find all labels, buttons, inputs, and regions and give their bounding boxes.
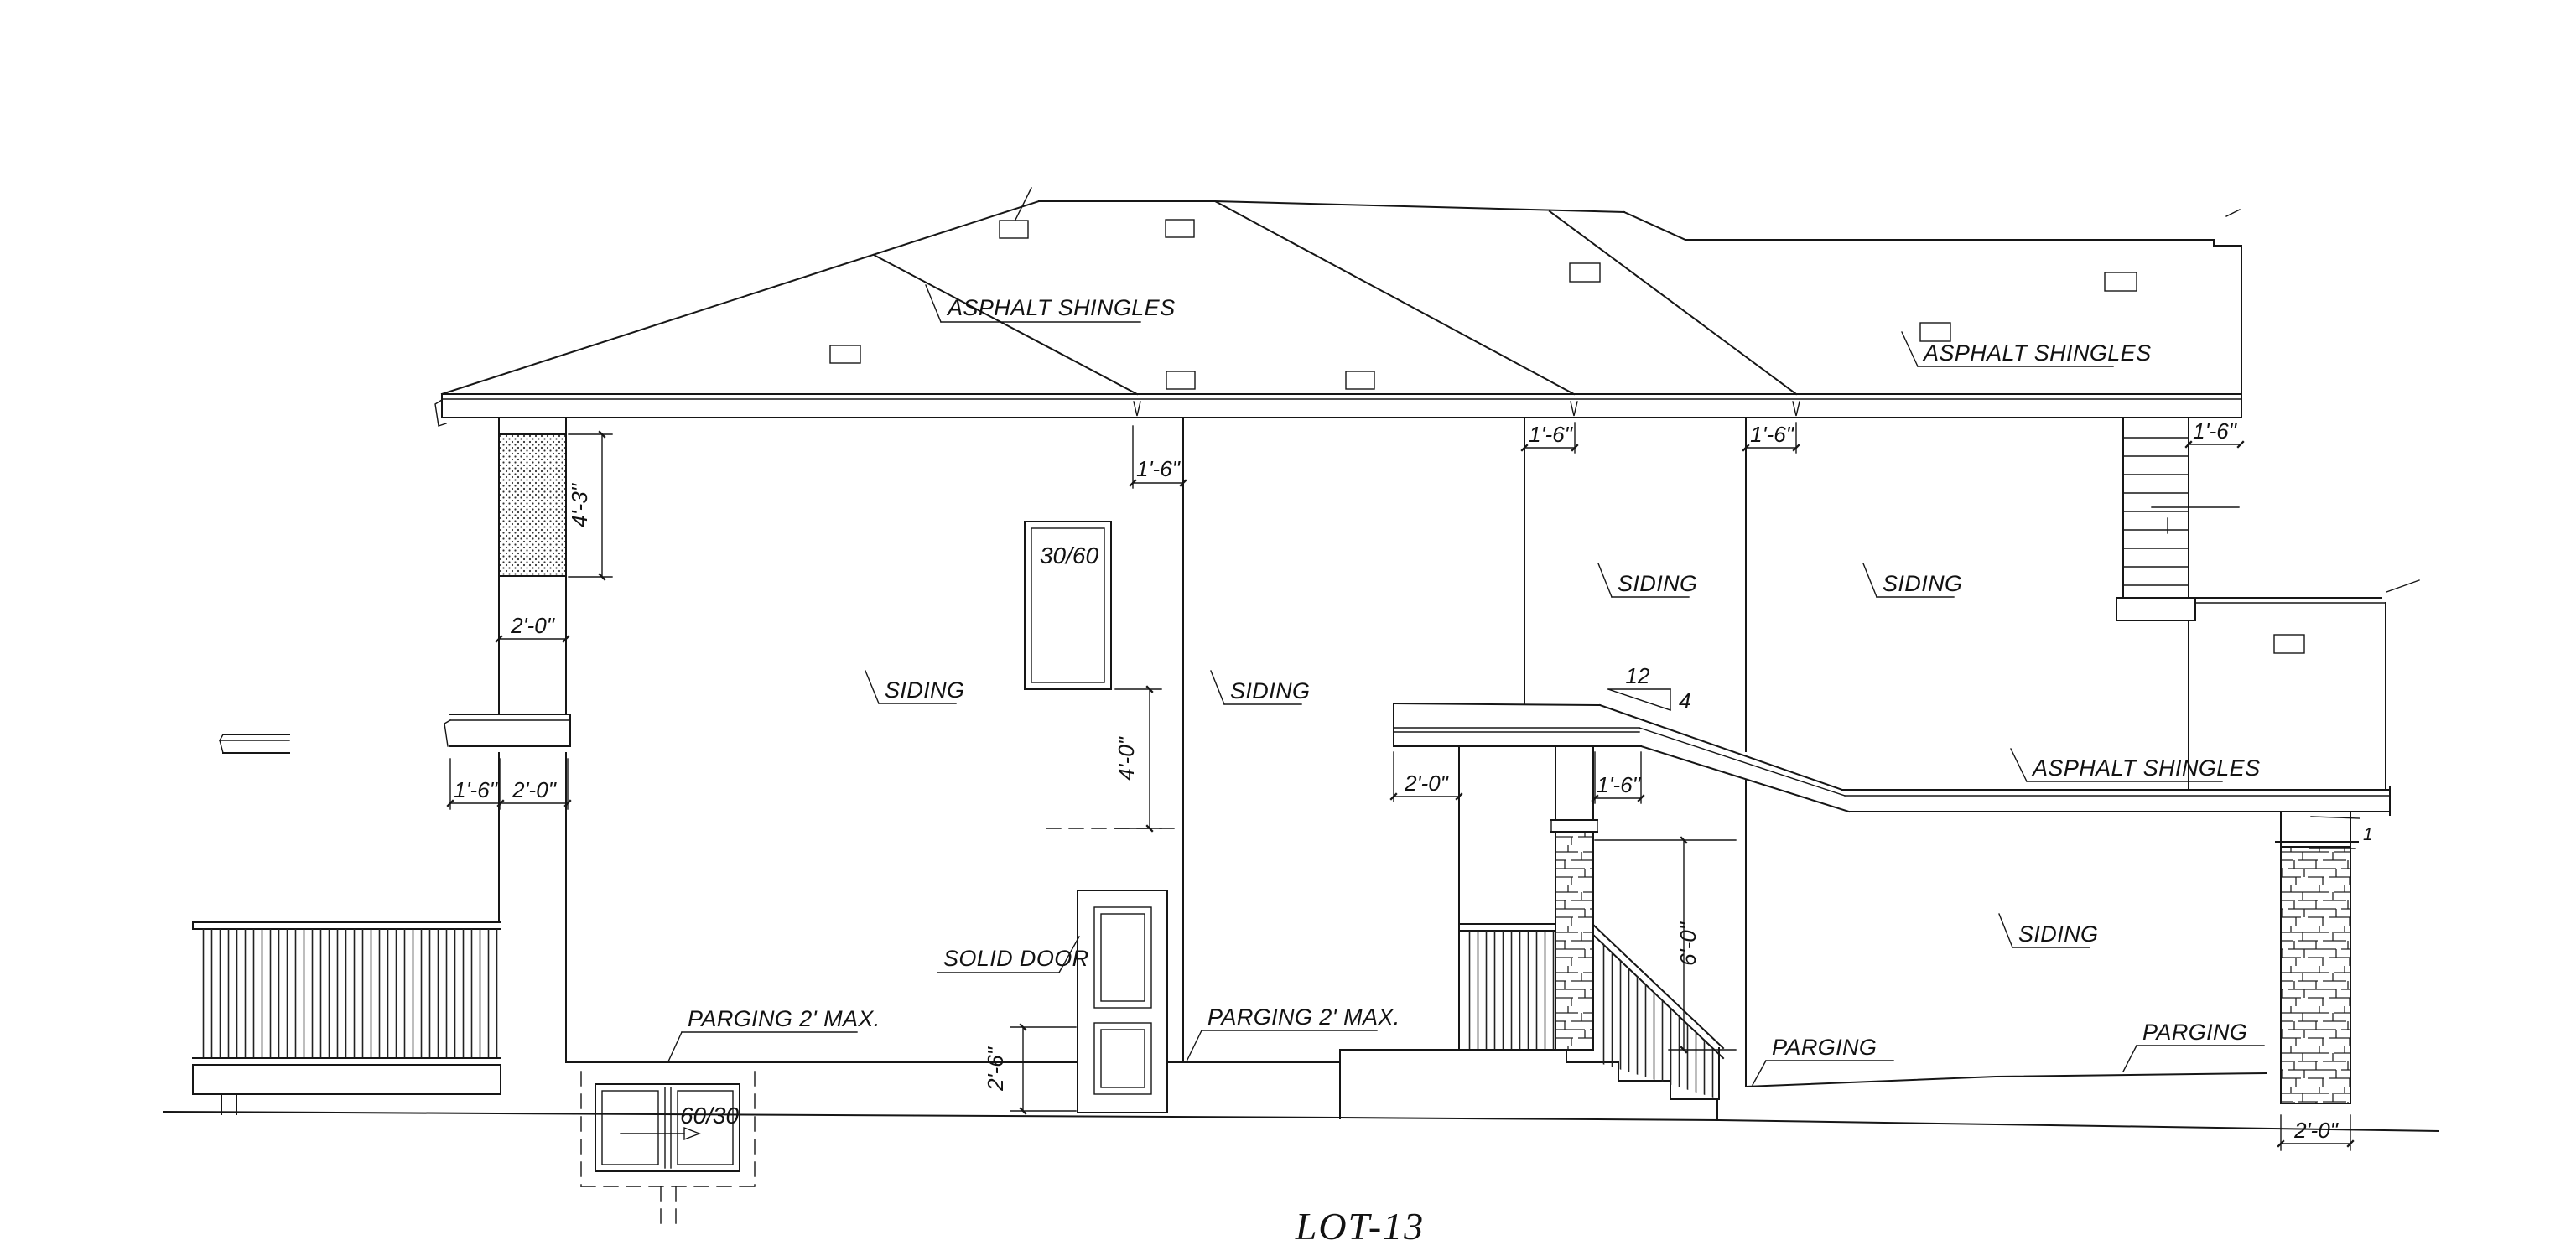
pillar-cap-note: 1 [2363,825,2373,844]
right-bay [2195,580,2419,603]
dim-window-sill: 4'-0" [1114,735,1139,781]
label-parging-max-1: PARGING 2' MAX. [688,1006,880,1031]
slope-rise: 12 [1626,663,1650,688]
label-siding-3: SIDING [1618,571,1697,596]
porch-column [1551,746,1597,1050]
roof-vent [1166,371,1195,389]
dim-chimney: 1'-6" [2193,418,2238,444]
stair-balusters [1597,937,1719,1099]
chimney-base-band [2116,598,2195,620]
roof-outline [435,188,2241,426]
dim-canopy-right: 2'-0" [512,777,558,802]
upper-window: 30/60 [1025,522,1111,689]
roof-vent [2274,635,2304,653]
side-canopy [444,714,570,746]
roof-vent [1920,323,1950,341]
label-parging-2: PARGING [2142,1020,2247,1045]
roof-vent [830,345,860,363]
dimensions: 2'-0" 4'-3" 1'-6" 2'-0" 1'-6" 4'-0" 2'-6… [450,418,2350,1150]
stair-railing [1593,925,1723,1099]
porch-railing [1461,924,1555,1050]
label-parging-1: PARGING [1772,1035,1877,1060]
stone-pillar: 1 [2276,812,2373,1103]
deck-balusters [196,929,498,1058]
label-siding-5: SIDING [2018,921,2098,947]
label-asphalt-shingles-3: ASPHALT SHINGLES [2031,755,2260,781]
label-siding-1: SIDING [885,677,964,703]
foundation-lines [164,1062,2438,1131]
dim-canopy-left: 1'-6" [454,777,499,802]
dim-gable-vent-height: 4'-3" [567,482,592,527]
dim-porch-left: 2'-0" [1404,771,1450,796]
deck-fascia [193,1065,501,1094]
label-parging-max-2: PARGING 2' MAX. [1207,1004,1400,1030]
dim-eave-b: 1'-6" [1750,422,1795,447]
label-siding-4: SIDING [1883,571,1962,596]
deck-railing [193,922,501,1114]
porch-balusters [1462,931,1555,1050]
elevation-drawing: 30/60 60/30 [0,0,2576,1256]
roof-vent [1000,221,1028,238]
elevation-sheet: 30/60 60/30 [0,0,2576,1256]
label-asphalt-shingles-1: ASPHALT SHINGLES [946,295,1175,320]
dim-pillar: 2'-0" [2293,1118,2340,1143]
chimney [2116,419,2239,620]
hip-line-a [1215,201,1574,394]
label-siding-2: SIDING [1230,678,1310,703]
roof-vent [1346,371,1374,389]
wall-lines [499,418,2386,1087]
grade-line [164,1112,2438,1131]
bay-roof-edge [2386,580,2419,592]
parging-line-right [1746,1073,2266,1087]
gable-vent [499,434,566,576]
stone-column [1555,832,1593,1050]
drawing-title: LOT-13 [1295,1205,1425,1248]
window-tag-upper: 30/60 [1040,542,1098,568]
roof-tick [2226,210,2240,216]
valley-line [874,255,1137,394]
eave-tick-2 [1571,402,1577,416]
dim-window-head: 1'-6" [1136,456,1182,481]
basement-window: 60/30 [581,1072,755,1226]
dim-stair-height: 6'-0" [1675,921,1701,966]
eave-tick-1 [1134,402,1140,416]
dim-eave-a: 1'-6" [1529,422,1574,447]
dim-porch-right: 1'-6" [1597,772,1642,797]
dim-door: 2'-6" [983,1046,1008,1092]
hip-line-b [1550,211,1796,394]
slope-run: 4 [1679,688,1690,714]
left-sill-band [220,734,289,753]
eave-tick-3 [1793,402,1800,416]
roof-vent [2105,272,2137,291]
dim-gable-vent-width: 2'-0" [510,613,556,638]
slope-indicator: 12 4 [1608,663,1690,714]
gutter-end [435,400,446,426]
entry-door [1078,890,1167,1113]
roof-vent [1570,263,1600,282]
window-tag-basement: 60/30 [680,1103,739,1129]
canopy-gutter [444,720,450,746]
roof-vent [1166,220,1194,237]
label-asphalt-shingles-2: ASPHALT SHINGLES [1922,340,2151,366]
slider-arrow-head [684,1128,699,1139]
